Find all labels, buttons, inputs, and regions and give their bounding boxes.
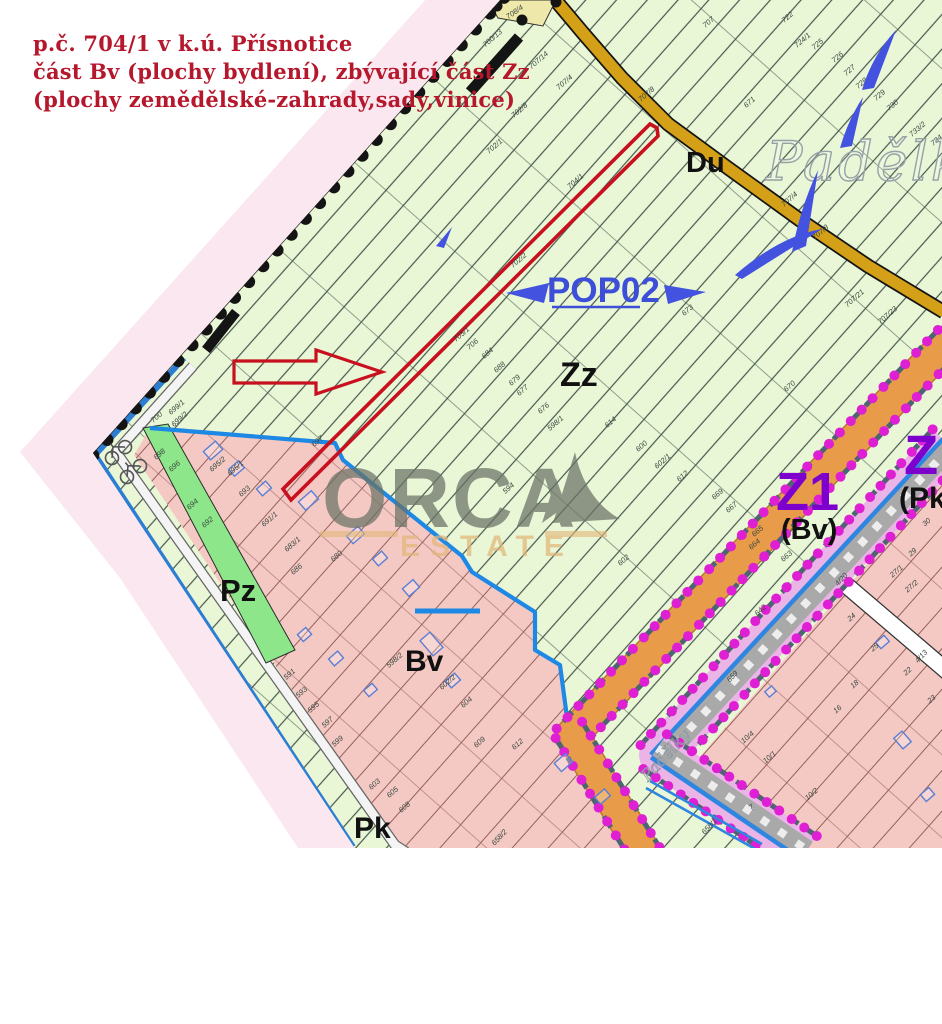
magenta-boundary-dot (896, 521, 906, 531)
magenta-boundary-dot (726, 541, 736, 551)
magenta-boundary-dot (584, 689, 594, 699)
magenta-boundary-dot (602, 817, 612, 827)
magenta-boundary-dot (868, 438, 878, 448)
magenta-boundary-dot (813, 450, 823, 460)
magenta-boundary-dot (727, 586, 737, 596)
magenta-boundary-dot (573, 701, 583, 711)
magenta-boundary-dot (885, 532, 895, 542)
magenta-boundary-dot (716, 597, 726, 607)
magenta-boundary-dot (715, 553, 725, 563)
magenta-boundary-dot (771, 594, 781, 604)
magenta-boundary-dot (639, 632, 649, 642)
magenta-boundary-dot (639, 677, 649, 687)
magenta-boundary-dot (672, 643, 682, 653)
magenta-boundary-dot (823, 599, 833, 609)
label-padelky: Padělky (765, 130, 942, 193)
magenta-boundary-dot (886, 469, 896, 479)
magenta-boundary-dot (698, 735, 708, 745)
label-pk: Pk (354, 812, 391, 845)
label-bv: Bv (405, 645, 444, 678)
magenta-boundary-dot (596, 722, 606, 732)
magenta-boundary-dot (704, 564, 714, 574)
magenta-boundary-dot (606, 667, 616, 677)
page-bottom-margin (0, 848, 942, 1024)
magenta-boundary-dot (759, 551, 769, 561)
magenta-boundary-dot (618, 699, 628, 709)
magenta-boundary-dot (865, 554, 875, 564)
magenta-boundary-dot (650, 665, 660, 675)
magenta-boundary-dot (737, 530, 747, 540)
magenta-boundary-dot (656, 718, 666, 728)
magenta-boundary-dot (781, 645, 791, 655)
magenta-boundary-dot (792, 571, 802, 581)
magenta-boundary-dot (857, 449, 867, 459)
magenta-boundary-dot (911, 348, 921, 358)
magenta-boundary-dot (594, 803, 604, 813)
magenta-boundary-dot (705, 608, 715, 618)
magenta-boundary-dot (628, 644, 638, 654)
magenta-boundary-dot (922, 336, 932, 346)
magenta-boundary-dot (708, 724, 718, 734)
label-z1-sub: (Bv) (781, 514, 837, 546)
cadastral-map: 708/4700/13707/14707/4707/8702/8702/1702… (0, 0, 942, 1024)
magenta-boundary-dot (813, 548, 823, 558)
magenta-boundary-dot (607, 711, 617, 721)
magenta-boundary-dot (762, 797, 772, 807)
annotation-line-1: p.č. 704/1 v k.ú. Přísnotice (33, 30, 530, 58)
magenta-boundary-dot (770, 540, 780, 550)
magenta-boundary-dot (878, 382, 888, 392)
magenta-boundary-dot (667, 706, 677, 716)
label-z2: Z (904, 423, 938, 486)
magenta-boundary-dot (879, 426, 889, 436)
magenta-boundary-dot (774, 806, 784, 816)
magenta-boundary-dot (787, 814, 797, 824)
magenta-boundary-dot (782, 582, 792, 592)
magenta-boundary-dot (661, 654, 671, 664)
magenta-boundary-dot (771, 656, 781, 666)
zoning-map-page: 708/4700/13707/14707/4707/8702/8702/1702… (0, 0, 942, 1024)
magenta-boundary-dot (629, 688, 639, 698)
annotation-header: p.č. 704/1 v k.ú. Přísnotice část Bv (pl… (33, 30, 530, 114)
annotation-line-3: (plochy zemědělské-zahrady,sady,vinice) (33, 86, 530, 114)
magenta-boundary-dot (688, 684, 698, 694)
magenta-boundary-dot (637, 814, 647, 824)
magenta-boundary-dot (923, 381, 933, 391)
magenta-boundary-dot (712, 763, 722, 773)
magenta-boundary-dot (551, 733, 561, 743)
magenta-boundary-dot (563, 712, 573, 722)
magenta-boundary-dot (739, 690, 749, 700)
magenta-boundary-dot (671, 598, 681, 608)
magenta-boundary-dot (629, 800, 639, 810)
magenta-boundary-dot (749, 789, 759, 799)
magenta-boundary-dot (912, 392, 922, 402)
magenta-boundary-dot (792, 633, 802, 643)
magenta-boundary-dot (650, 621, 660, 631)
magenta-boundary-dot (687, 746, 697, 756)
magenta-boundary-dot (737, 574, 747, 584)
magenta-boundary-dot (875, 481, 885, 491)
magenta-boundary-dot (719, 650, 729, 660)
magenta-boundary-dot (694, 620, 704, 630)
magenta-boundary-dot (854, 566, 864, 576)
map-content: 708/4700/13707/14707/4707/8702/8702/1702… (0, 0, 942, 876)
label-z1: Z1 (776, 462, 839, 522)
magenta-boundary-dot (750, 678, 760, 688)
magenta-boundary-dot (868, 393, 878, 403)
magenta-boundary-dot (677, 695, 687, 705)
magenta-boundary-dot (709, 661, 719, 671)
label-zz: Zz (560, 356, 598, 394)
magenta-boundary-dot (900, 359, 910, 369)
magenta-boundary-dot (760, 667, 770, 677)
magenta-boundary-dot (646, 828, 656, 838)
magenta-boundary-dot (844, 515, 854, 525)
magenta-boundary-dot (740, 627, 750, 637)
magenta-boundary-dot (759, 507, 769, 517)
magenta-boundary-dot (636, 740, 646, 750)
magenta-boundary-dot (824, 439, 834, 449)
magenta-boundary-dot (737, 780, 747, 790)
magenta-boundary-dot (699, 755, 709, 765)
magenta-boundary-dot (835, 427, 845, 437)
magenta-boundary-dot (595, 678, 605, 688)
magenta-boundary-dot (552, 724, 562, 734)
magenta-boundary-dot (748, 563, 758, 573)
magenta-boundary-dot (812, 611, 822, 621)
magenta-boundary-dot (698, 672, 708, 682)
magenta-boundary-dot (889, 371, 899, 381)
magenta-boundary-dot (865, 492, 875, 502)
annotation-line-2: část Bv (plochy bydlení), zbývající část… (33, 58, 530, 86)
magenta-boundary-dot (729, 639, 739, 649)
magenta-boundary-dot (603, 758, 613, 768)
magenta-boundary-dot (585, 789, 595, 799)
magenta-boundary-dot (719, 712, 729, 722)
magenta-boundary-dot (594, 745, 604, 755)
watermark-sub: ESTATE (400, 530, 574, 563)
magenta-boundary-dot (802, 622, 812, 632)
magenta-boundary-dot (812, 831, 822, 841)
label-pop02: POP02 (547, 271, 660, 310)
magenta-boundary-dot (855, 503, 865, 513)
magenta-boundary-dot (586, 731, 596, 741)
magenta-boundary-dot (833, 588, 843, 598)
magenta-boundary-dot (620, 786, 630, 796)
magenta-boundary-dot (611, 772, 621, 782)
magenta-boundary-dot (802, 560, 812, 570)
label-pz: Pz (220, 573, 256, 608)
magenta-boundary-dot (799, 823, 809, 833)
magenta-boundary-dot (750, 616, 760, 626)
magenta-boundary-dot (661, 610, 671, 620)
magenta-boundary-dot (693, 576, 703, 586)
magenta-boundary-dot (846, 416, 856, 426)
magenta-boundary-dot (901, 403, 911, 413)
label-du: Du (686, 147, 725, 179)
magenta-boundary-dot (846, 460, 856, 470)
magenta-boundary-dot (611, 830, 621, 840)
magenta-boundary-dot (857, 405, 867, 415)
label-z2-sub: (Pk (899, 482, 942, 515)
magenta-boundary-dot (682, 587, 692, 597)
magenta-boundary-dot (576, 775, 586, 785)
magenta-boundary-dot (724, 772, 734, 782)
magenta-boundary-dot (875, 543, 885, 553)
magenta-boundary-dot (729, 701, 739, 711)
magenta-boundary-dot (577, 717, 587, 727)
magenta-boundary-dot (646, 729, 656, 739)
magenta-boundary-dot (890, 415, 900, 425)
magenta-boundary-dot (683, 631, 693, 641)
magenta-boundary-dot (617, 655, 627, 665)
